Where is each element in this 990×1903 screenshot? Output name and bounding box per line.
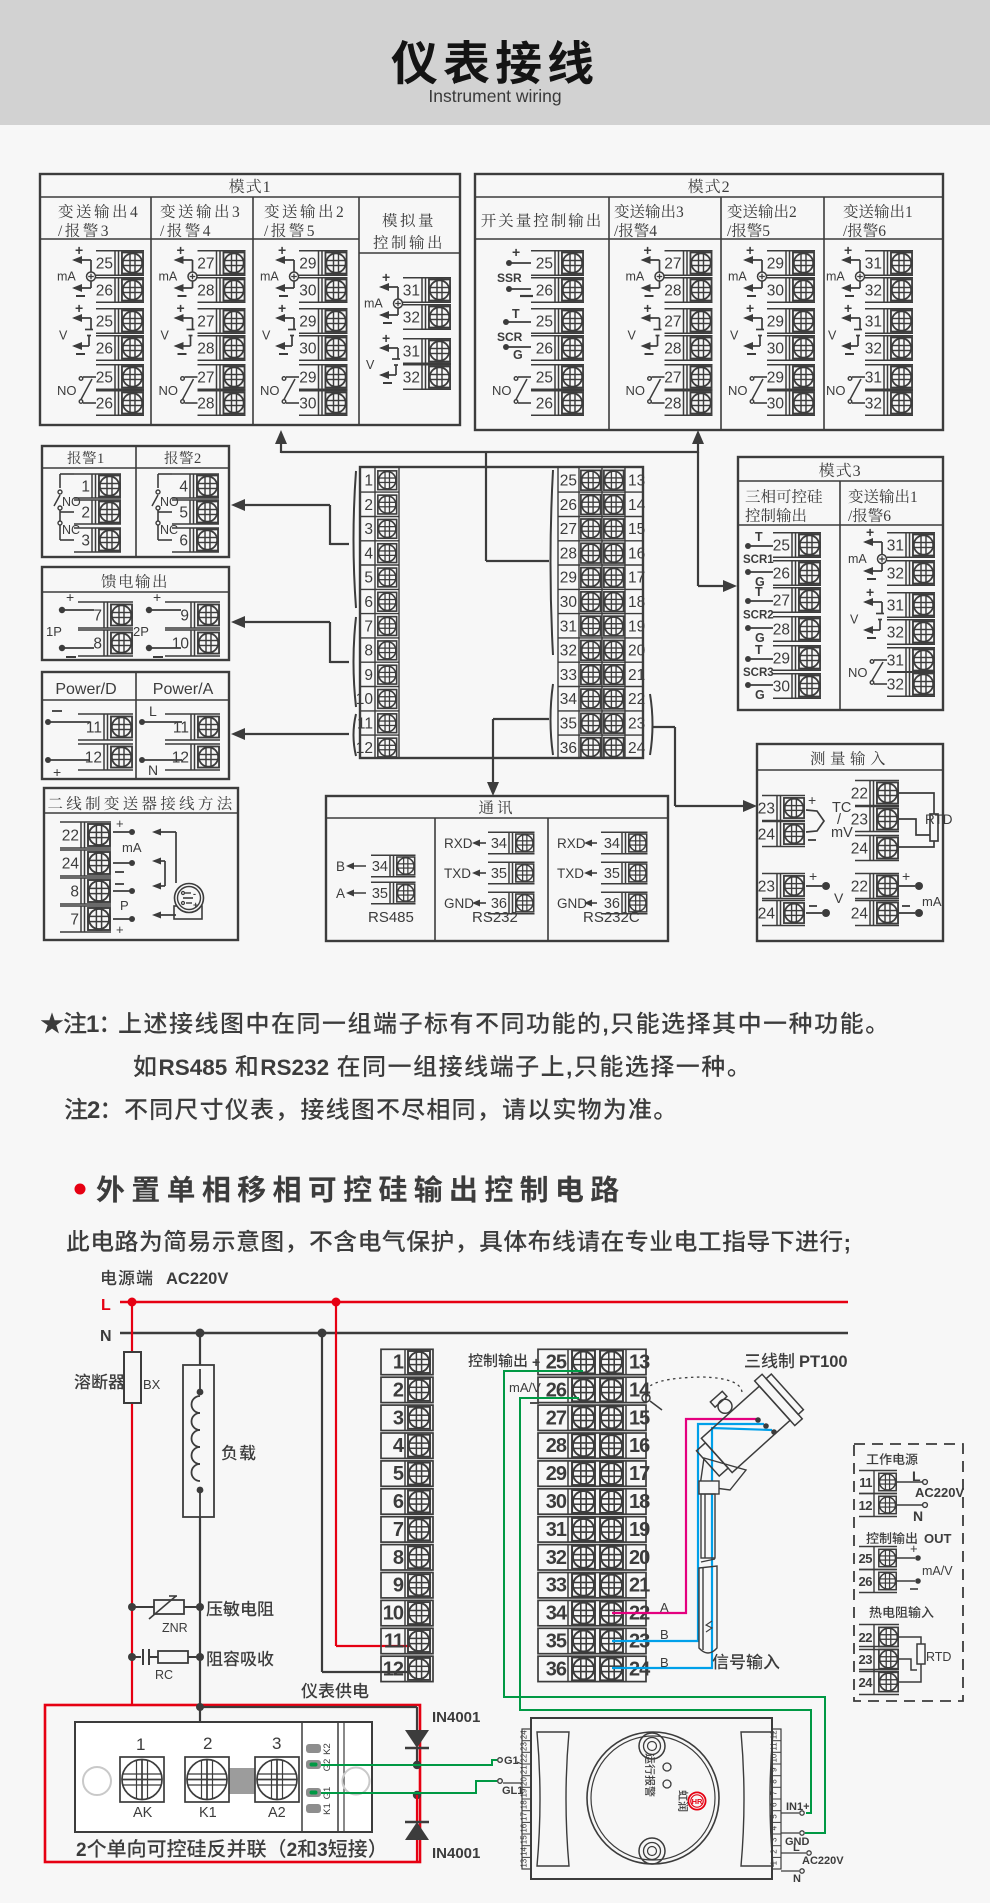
svg-text:/: / xyxy=(614,223,619,240)
svg-text:31: 31 xyxy=(403,283,420,300)
svg-text:+: + xyxy=(644,242,652,258)
svg-text:B: B xyxy=(336,859,345,874)
svg-text:Power/A: Power/A xyxy=(153,681,214,698)
svg-text:36: 36 xyxy=(546,1658,567,1680)
svg-text:Instrument wiring: Instrument wiring xyxy=(428,86,561,106)
svg-text:18: 18 xyxy=(628,594,645,611)
svg-text:2: 2 xyxy=(336,204,344,221)
svg-text:V: V xyxy=(834,890,844,906)
svg-text:34: 34 xyxy=(604,836,620,852)
svg-text:12: 12 xyxy=(859,1498,873,1513)
svg-text:9: 9 xyxy=(364,667,373,684)
svg-text:32: 32 xyxy=(865,341,882,358)
svg-text:29: 29 xyxy=(299,314,316,331)
svg-text:/: / xyxy=(58,223,63,240)
svg-text:K2: K2 xyxy=(322,1743,333,1755)
svg-text:+: + xyxy=(809,868,817,884)
svg-text:27: 27 xyxy=(560,521,577,538)
svg-text:PT100: PT100 xyxy=(799,1353,848,1371)
svg-text:AC220V: AC220V xyxy=(166,1270,228,1288)
svg-text:25: 25 xyxy=(773,538,790,555)
svg-text:26: 26 xyxy=(773,566,790,583)
svg-text:7: 7 xyxy=(393,1519,404,1541)
svg-text:+: + xyxy=(278,242,286,258)
svg-text:27: 27 xyxy=(546,1407,567,1429)
svg-text:31: 31 xyxy=(403,344,420,361)
svg-text:+: + xyxy=(844,242,852,258)
svg-text:+: + xyxy=(910,1541,918,1556)
svg-text:13: 13 xyxy=(628,473,645,490)
svg-text:15: 15 xyxy=(520,1835,529,1844)
svg-text:-: - xyxy=(193,889,196,899)
svg-text:1: 1 xyxy=(136,1735,145,1754)
svg-text:+: + xyxy=(746,242,754,258)
svg-text:28: 28 xyxy=(664,283,681,300)
svg-text:27: 27 xyxy=(197,256,214,273)
svg-text:28: 28 xyxy=(197,396,214,413)
svg-text:17: 17 xyxy=(628,570,645,587)
svg-text:11: 11 xyxy=(384,1631,404,1653)
svg-text:15: 15 xyxy=(628,521,645,538)
svg-text:22: 22 xyxy=(851,786,868,803)
svg-text:1: 1 xyxy=(364,473,373,490)
svg-text:+: + xyxy=(644,300,652,316)
svg-text:31: 31 xyxy=(865,370,882,387)
svg-text:22: 22 xyxy=(520,1753,529,1762)
svg-text:32: 32 xyxy=(560,643,577,660)
svg-text:29: 29 xyxy=(299,370,316,387)
svg-text:19: 19 xyxy=(628,618,645,635)
svg-text:10: 10 xyxy=(383,1603,404,1625)
svg-text:V: V xyxy=(262,329,271,343)
svg-text:34: 34 xyxy=(372,859,388,875)
svg-text:B: B xyxy=(660,1655,669,1670)
svg-text:24: 24 xyxy=(628,740,646,757)
svg-text:+: + xyxy=(278,300,286,316)
svg-text:25: 25 xyxy=(96,256,113,273)
svg-text:4: 4 xyxy=(364,545,373,562)
svg-text:GND: GND xyxy=(444,896,474,911)
svg-text:V: V xyxy=(850,613,859,627)
svg-text:28: 28 xyxy=(560,545,577,562)
svg-text:1: 1 xyxy=(905,204,913,221)
svg-text:RS485: RS485 xyxy=(159,1055,228,1080)
svg-text:33: 33 xyxy=(560,667,577,684)
svg-text:6: 6 xyxy=(883,508,891,525)
svg-text:12: 12 xyxy=(356,740,373,757)
svg-text:L: L xyxy=(793,1842,800,1854)
svg-text:B: B xyxy=(660,1627,669,1642)
svg-text:+: + xyxy=(177,300,185,316)
svg-text:35: 35 xyxy=(546,1631,567,1653)
svg-text:28: 28 xyxy=(546,1435,567,1457)
svg-text:31: 31 xyxy=(887,598,904,615)
svg-text:NO: NO xyxy=(160,495,179,509)
svg-text:25: 25 xyxy=(536,370,553,387)
svg-text:TXD: TXD xyxy=(444,866,471,881)
svg-text:3: 3 xyxy=(81,533,90,550)
svg-text:35: 35 xyxy=(491,866,507,882)
svg-text:SSR: SSR xyxy=(497,271,522,285)
svg-text:2P: 2P xyxy=(133,624,149,639)
svg-text:32: 32 xyxy=(865,283,882,300)
svg-text:30: 30 xyxy=(560,594,578,611)
svg-text:K1: K1 xyxy=(199,1805,217,1821)
svg-text:1: 1 xyxy=(81,479,90,496)
svg-text:A: A xyxy=(336,886,345,901)
svg-text:/: / xyxy=(160,223,165,240)
svg-text:mA: mA xyxy=(57,270,76,284)
svg-text:30: 30 xyxy=(773,679,791,696)
svg-text:29: 29 xyxy=(767,314,784,331)
svg-text:+: + xyxy=(116,922,124,937)
svg-text:+: + xyxy=(532,1354,540,1370)
svg-text:RTD: RTD xyxy=(926,1650,951,1664)
svg-text:28: 28 xyxy=(664,396,681,413)
svg-text:16: 16 xyxy=(629,1435,650,1457)
svg-text:7: 7 xyxy=(770,1790,779,1795)
svg-text:27: 27 xyxy=(197,314,214,331)
svg-text:26: 26 xyxy=(96,283,113,300)
svg-text:26: 26 xyxy=(536,341,553,358)
svg-text:2: 2 xyxy=(770,1849,779,1854)
svg-text:L: L xyxy=(101,1297,111,1314)
svg-text:K1: K1 xyxy=(322,1803,333,1815)
svg-text:NO: NO xyxy=(57,383,77,398)
svg-text:IN1+: IN1+ xyxy=(786,1801,810,1813)
svg-text:+: + xyxy=(153,589,161,605)
svg-text:RXD: RXD xyxy=(444,836,473,851)
svg-text:24: 24 xyxy=(859,1675,874,1690)
svg-text:16: 16 xyxy=(628,545,645,562)
svg-text:ZNR: ZNR xyxy=(162,1621,188,1635)
svg-text:28: 28 xyxy=(197,283,214,300)
svg-text:21: 21 xyxy=(520,1765,529,1774)
svg-text:5: 5 xyxy=(364,570,373,587)
svg-text:3: 3 xyxy=(393,1407,404,1429)
svg-text:2: 2 xyxy=(364,497,373,514)
svg-text:2: 2 xyxy=(87,1097,100,1124)
svg-text:34: 34 xyxy=(491,836,507,852)
svg-text:7: 7 xyxy=(70,912,79,929)
svg-text:24: 24 xyxy=(520,1730,529,1739)
svg-text:SCR2: SCR2 xyxy=(743,610,774,622)
svg-text:+: + xyxy=(75,242,83,258)
svg-text:2: 2 xyxy=(287,1840,298,1861)
svg-text:SCR: SCR xyxy=(497,330,523,344)
svg-text:12: 12 xyxy=(172,750,189,767)
svg-text:23: 23 xyxy=(520,1742,529,1751)
svg-text:34: 34 xyxy=(560,691,578,708)
svg-text:A: A xyxy=(660,1600,669,1615)
svg-text:31: 31 xyxy=(887,538,904,555)
svg-text:/: / xyxy=(264,223,269,240)
svg-text:NO: NO xyxy=(626,383,646,398)
svg-text:+: + xyxy=(116,816,124,831)
svg-text:26: 26 xyxy=(536,283,553,300)
svg-text:IN4001: IN4001 xyxy=(432,1845,480,1862)
svg-text:1P: 1P xyxy=(46,624,62,639)
svg-text:9: 9 xyxy=(180,608,189,625)
svg-text:5: 5 xyxy=(393,1463,404,1485)
svg-text:35: 35 xyxy=(372,886,388,902)
svg-text:12: 12 xyxy=(770,1730,779,1739)
svg-text:AC220V: AC220V xyxy=(802,1855,844,1867)
svg-text:2: 2 xyxy=(76,1840,87,1861)
svg-text:,: , xyxy=(603,1012,609,1037)
svg-text:31: 31 xyxy=(546,1519,567,1541)
svg-text:17: 17 xyxy=(629,1463,650,1485)
svg-text:NO: NO xyxy=(728,383,748,398)
svg-text:mA: mA xyxy=(728,270,747,284)
svg-text:29: 29 xyxy=(773,651,790,668)
svg-text:28: 28 xyxy=(197,341,214,358)
svg-text:SCR3: SCR3 xyxy=(743,667,774,679)
svg-text:L: L xyxy=(149,703,157,719)
svg-text:7: 7 xyxy=(93,608,102,625)
svg-text:mA: mA xyxy=(159,270,178,284)
svg-text:+: + xyxy=(746,300,754,316)
svg-text:26: 26 xyxy=(96,396,113,413)
svg-text:+: + xyxy=(866,584,874,600)
svg-text:22: 22 xyxy=(62,828,79,845)
svg-text:/: / xyxy=(848,508,853,525)
svg-text:2: 2 xyxy=(393,1379,404,1401)
svg-text:4: 4 xyxy=(649,223,657,240)
svg-text:20: 20 xyxy=(520,1777,529,1786)
svg-text:6: 6 xyxy=(770,1802,779,1807)
svg-text:18: 18 xyxy=(520,1800,529,1809)
svg-text:TXD: TXD xyxy=(557,866,584,881)
svg-text:NO: NO xyxy=(62,495,81,509)
svg-text:23: 23 xyxy=(851,812,868,829)
svg-text:27: 27 xyxy=(664,256,681,273)
svg-text:17: 17 xyxy=(520,1812,529,1821)
svg-text:26: 26 xyxy=(536,396,553,413)
svg-text:6: 6 xyxy=(393,1491,404,1513)
svg-text:mA/V: mA/V xyxy=(509,1380,541,1395)
svg-text:24: 24 xyxy=(758,906,776,923)
svg-text:26: 26 xyxy=(859,1574,873,1589)
svg-text:NO: NO xyxy=(826,383,846,398)
svg-text:NC: NC xyxy=(62,523,80,537)
svg-text:4: 4 xyxy=(179,479,188,496)
svg-text:14: 14 xyxy=(629,1379,651,1401)
svg-text:10: 10 xyxy=(356,691,374,708)
svg-text:25: 25 xyxy=(96,314,113,331)
svg-text:+: + xyxy=(808,792,816,808)
svg-text:/: / xyxy=(727,223,732,240)
svg-text:N: N xyxy=(793,1873,801,1885)
svg-text:14: 14 xyxy=(520,1847,529,1856)
svg-text:18: 18 xyxy=(629,1491,650,1513)
svg-text:NO: NO xyxy=(492,383,512,398)
svg-text:G: G xyxy=(755,688,765,702)
svg-text:8: 8 xyxy=(364,643,373,660)
svg-text:13: 13 xyxy=(520,1858,529,1867)
svg-text:1: 1 xyxy=(263,179,271,196)
svg-text:23: 23 xyxy=(758,879,775,896)
svg-text:3: 3 xyxy=(272,1734,281,1753)
svg-text:20: 20 xyxy=(628,643,646,660)
svg-text:RTD: RTD xyxy=(925,812,953,827)
svg-text:;: ; xyxy=(844,1230,851,1255)
svg-text:30: 30 xyxy=(299,341,317,358)
svg-text:NC: NC xyxy=(160,523,178,537)
svg-text:T: T xyxy=(755,530,763,544)
svg-text:7: 7 xyxy=(364,618,373,635)
svg-text:35: 35 xyxy=(560,716,577,733)
svg-text:22: 22 xyxy=(628,691,645,708)
svg-text:A2: A2 xyxy=(268,1805,286,1821)
svg-text:6: 6 xyxy=(364,594,373,611)
svg-text:15: 15 xyxy=(629,1407,650,1429)
svg-text:OUT: OUT xyxy=(924,1531,952,1546)
svg-text:2: 2 xyxy=(789,204,797,221)
svg-text:31: 31 xyxy=(865,256,882,273)
svg-text:31: 31 xyxy=(887,653,904,670)
svg-text:mA: mA xyxy=(848,552,867,566)
svg-text:4: 4 xyxy=(130,204,138,221)
svg-text:+: + xyxy=(193,900,198,910)
svg-text:32: 32 xyxy=(887,677,904,694)
svg-text:IN4001: IN4001 xyxy=(432,1709,480,1726)
svg-text:T: T xyxy=(755,643,763,657)
svg-text:+: + xyxy=(177,242,185,258)
svg-text:N: N xyxy=(913,1508,923,1524)
svg-text:+: + xyxy=(382,330,390,346)
svg-text:5: 5 xyxy=(179,505,188,522)
svg-text:14: 14 xyxy=(628,497,646,514)
svg-text:3: 3 xyxy=(317,1840,328,1861)
svg-text:2: 2 xyxy=(194,451,201,467)
svg-text:3: 3 xyxy=(676,204,684,221)
svg-text:24: 24 xyxy=(851,841,869,858)
svg-text:32: 32 xyxy=(887,566,904,583)
svg-text:T: T xyxy=(512,307,520,321)
svg-text:V: V xyxy=(828,329,837,343)
svg-text:26: 26 xyxy=(560,497,577,514)
svg-text:25: 25 xyxy=(859,1551,873,1566)
svg-text:29: 29 xyxy=(767,370,784,387)
svg-text:21: 21 xyxy=(629,1575,650,1597)
svg-text:22: 22 xyxy=(859,1630,873,1645)
svg-text:21: 21 xyxy=(628,667,645,684)
svg-text:AK: AK xyxy=(133,1805,153,1821)
svg-text:5: 5 xyxy=(762,223,770,240)
svg-text:16: 16 xyxy=(520,1823,529,1832)
svg-text:32: 32 xyxy=(403,310,420,327)
svg-text:+: + xyxy=(512,244,520,260)
svg-text:8: 8 xyxy=(70,884,79,901)
svg-text:NO: NO xyxy=(260,383,280,398)
svg-text:22: 22 xyxy=(851,879,868,896)
svg-text:3: 3 xyxy=(232,204,240,221)
svg-text:1: 1 xyxy=(770,1860,779,1865)
svg-text:24: 24 xyxy=(62,856,80,873)
svg-text:1: 1 xyxy=(910,489,918,506)
svg-text:19: 19 xyxy=(629,1519,650,1541)
svg-text:5: 5 xyxy=(307,223,315,240)
svg-text:11: 11 xyxy=(859,1475,872,1490)
svg-text:33: 33 xyxy=(546,1575,567,1597)
svg-text:32: 32 xyxy=(887,625,904,642)
svg-text:35: 35 xyxy=(604,866,620,882)
svg-text:4: 4 xyxy=(203,223,211,240)
svg-text:+: + xyxy=(866,524,874,540)
svg-text:31: 31 xyxy=(865,314,882,331)
svg-text:32: 32 xyxy=(403,370,420,387)
svg-text:26: 26 xyxy=(96,341,113,358)
svg-text:27: 27 xyxy=(664,314,681,331)
svg-text:V: V xyxy=(628,329,637,343)
svg-text:27: 27 xyxy=(773,593,790,610)
svg-text:1: 1 xyxy=(393,1352,404,1374)
svg-text:27: 27 xyxy=(664,370,681,387)
svg-text:P: P xyxy=(120,898,129,913)
svg-text:/: / xyxy=(843,223,848,240)
svg-text:32: 32 xyxy=(865,396,882,413)
svg-text:+: + xyxy=(53,764,61,780)
svg-text:25: 25 xyxy=(536,314,553,331)
svg-text:RS232: RS232 xyxy=(472,909,518,926)
svg-text:V: V xyxy=(59,329,68,343)
svg-text:RS232C: RS232C xyxy=(583,909,640,926)
svg-text:12: 12 xyxy=(85,750,102,767)
svg-text:N: N xyxy=(100,1328,112,1345)
svg-text:31: 31 xyxy=(560,618,577,635)
svg-text:20: 20 xyxy=(629,1547,650,1569)
svg-text:SCR1: SCR1 xyxy=(743,554,774,566)
svg-text:29: 29 xyxy=(299,256,316,273)
svg-text:RS485: RS485 xyxy=(368,909,414,926)
svg-text:11: 11 xyxy=(770,1742,779,1751)
svg-text:mA: mA xyxy=(626,270,645,284)
svg-text:+: + xyxy=(902,868,910,884)
svg-text:mA: mA xyxy=(364,297,383,311)
svg-text:30: 30 xyxy=(546,1491,567,1513)
svg-text:,: , xyxy=(566,1055,572,1080)
svg-text:2: 2 xyxy=(81,505,90,522)
svg-text:V: V xyxy=(730,329,739,343)
svg-text:NO: NO xyxy=(848,665,868,680)
svg-text:29: 29 xyxy=(767,256,784,273)
svg-text:36: 36 xyxy=(560,740,577,757)
svg-text:V: V xyxy=(161,329,170,343)
svg-text:8: 8 xyxy=(93,636,102,653)
svg-text:+: + xyxy=(382,269,390,285)
svg-text:6: 6 xyxy=(878,223,886,240)
svg-text:G: G xyxy=(513,348,523,362)
svg-text:19: 19 xyxy=(520,1788,529,1797)
svg-text:N: N xyxy=(148,762,158,778)
svg-text:25: 25 xyxy=(560,473,577,490)
svg-text:23: 23 xyxy=(628,716,645,733)
svg-text:mA: mA xyxy=(922,894,942,909)
svg-text:+: + xyxy=(75,300,83,316)
svg-text:10: 10 xyxy=(172,636,190,653)
svg-text:RC: RC xyxy=(155,1668,173,1682)
svg-text:3: 3 xyxy=(364,521,373,538)
svg-text:mA: mA xyxy=(122,840,142,855)
svg-text:27: 27 xyxy=(197,370,214,387)
svg-text:25: 25 xyxy=(536,256,553,273)
svg-text:23: 23 xyxy=(859,1652,873,1667)
svg-text:1: 1 xyxy=(97,451,104,467)
svg-text:30: 30 xyxy=(767,396,785,413)
svg-text:25: 25 xyxy=(96,370,113,387)
svg-text:AC220V: AC220V xyxy=(915,1485,964,1500)
